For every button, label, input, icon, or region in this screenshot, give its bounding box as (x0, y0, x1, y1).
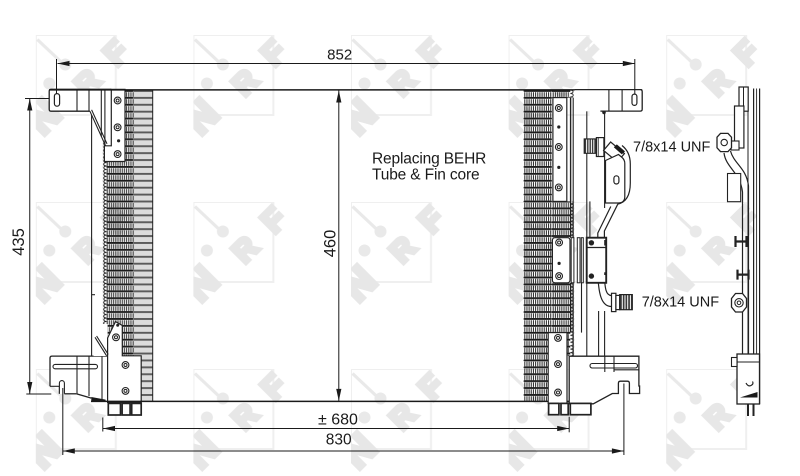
svg-text:± 680: ± 680 (318, 412, 358, 429)
svg-text:7/8x14 UNF: 7/8x14 UNF (642, 295, 720, 311)
svg-text:460: 460 (322, 230, 340, 258)
svg-text:852: 852 (327, 47, 352, 64)
svg-text:435: 435 (10, 228, 28, 256)
svg-text:Tube & Fin core: Tube & Fin core (372, 167, 479, 184)
svg-text:7/8x14 UNF: 7/8x14 UNF (633, 140, 711, 156)
svg-text:Replacing BEHR: Replacing BEHR (372, 151, 486, 168)
svg-text:830: 830 (326, 432, 352, 449)
